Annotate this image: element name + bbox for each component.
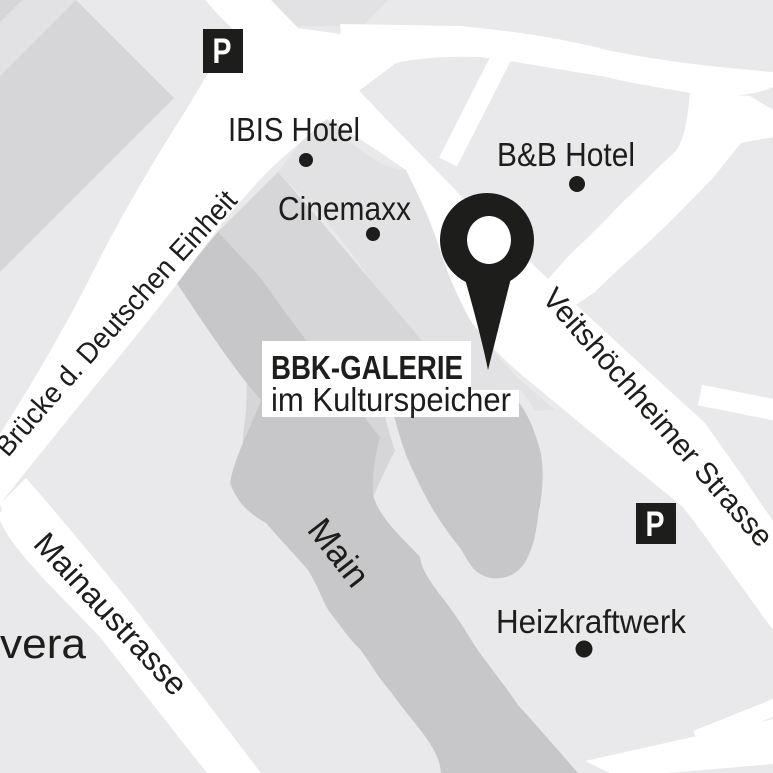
svg-text:Cinemaxx: Cinemaxx [278,190,411,227]
svg-text:P: P [213,32,232,71]
svg-text:B&B Hotel: B&B Hotel [497,136,635,173]
svg-text:vera: vera [0,620,87,667]
svg-text:Heizkraftwerk: Heizkraftwerk [496,603,686,640]
svg-text:P: P [646,505,665,544]
svg-text:IBIS Hotel: IBIS Hotel [228,111,360,148]
svg-text:im Kulturspeicher: im Kulturspeicher [271,381,511,418]
